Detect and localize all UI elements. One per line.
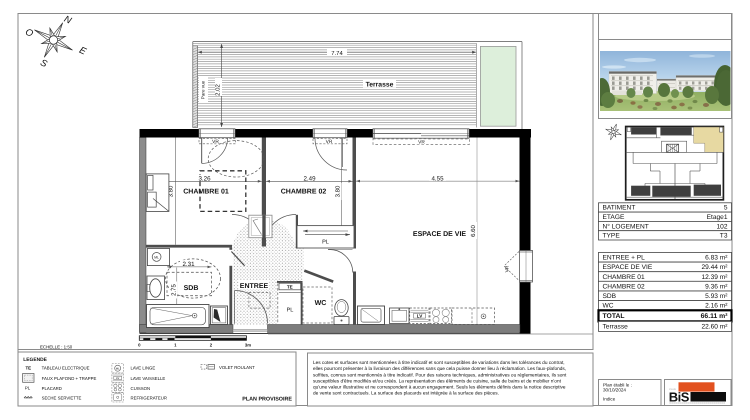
svg-text:3.26: 3.26: [198, 176, 211, 183]
svg-text:CHAMBRE 02: CHAMBRE 02: [281, 188, 327, 195]
svg-text:Les cotes et surfaces sont men: Les cotes et surfaces sont mentionnées à…: [313, 360, 565, 366]
svg-text:2.16 m²: 2.16 m²: [705, 303, 728, 310]
svg-text:ENTREE: ENTREE: [240, 283, 269, 290]
svg-text:TYPE: TYPE: [603, 233, 621, 240]
svg-text:30/10/2024: 30/10/2024: [603, 388, 626, 393]
svg-text:6.60: 6.60: [470, 225, 477, 237]
svg-text:REFRIGERATEUR: REFRIGERATEUR: [131, 396, 167, 401]
svg-text:TE: TE: [25, 365, 31, 370]
svg-text:qu'une valeur illustrative et: qu'une valeur illustrative et ne corresp…: [313, 384, 566, 390]
svg-text:LV: LV: [417, 314, 423, 319]
svg-text:T3: T3: [720, 233, 728, 240]
svg-text:5: 5: [724, 205, 728, 212]
svg-text:soffites, connus sont mentionn: soffites, connus sont mentionnés à titre…: [313, 372, 567, 378]
svg-text:4.55: 4.55: [431, 175, 444, 182]
svg-text:ETAGE: ETAGE: [603, 214, 625, 221]
svg-text:66.11 m²: 66.11 m²: [701, 313, 729, 320]
svg-text:PL: PL: [322, 240, 329, 246]
svg-text:VOLET ROULANT: VOLET ROULANT: [219, 365, 255, 370]
svg-text:Pare vue: Pare vue: [201, 80, 206, 99]
svg-text:SDB: SDB: [184, 285, 199, 292]
svg-text:2.75: 2.75: [171, 284, 178, 296]
svg-text:Terrasse: Terrasse: [366, 82, 394, 89]
svg-text:de vente sont contractuels. La: de vente sont contractuels. La surface d…: [313, 391, 499, 397]
svg-text:Indice: Indice: [603, 397, 616, 402]
svg-text:6.83 m²: 6.83 m²: [705, 255, 728, 262]
svg-text:FAUX PLAFOND + TRAPPE: FAUX PLAFOND + TRAPPE: [42, 376, 97, 381]
svg-text:3.80: 3.80: [334, 185, 341, 197]
svg-text:PL: PL: [25, 386, 31, 391]
svg-text:ENTREE + PL: ENTREE + PL: [603, 255, 646, 262]
svg-text:Etage1: Etage1: [707, 214, 728, 221]
svg-text:CHAMBRE 01: CHAMBRE 01: [603, 274, 645, 281]
svg-text:PLACARD: PLACARD: [42, 386, 62, 391]
svg-text:VR: VR: [505, 265, 511, 272]
svg-text:TOTAL: TOTAL: [603, 313, 625, 320]
svg-text:TE: TE: [287, 285, 293, 290]
svg-text:7.74: 7.74: [331, 50, 343, 57]
svg-text:VR: VR: [418, 140, 425, 146]
svg-text:CHAMBRE 01: CHAMBRE 01: [183, 188, 229, 195]
svg-text:PL: PL: [287, 308, 294, 314]
svg-text:29.44 m²: 29.44 m²: [701, 264, 728, 271]
svg-text:ML: ML: [116, 367, 120, 371]
svg-text:ECHELLE : 1:50: ECHELLE : 1:50: [40, 344, 73, 349]
svg-text:elles pourront présenter à la: elles pourront présenter à la livraison …: [313, 366, 566, 372]
svg-text:5.93 m²: 5.93 m²: [705, 293, 728, 300]
svg-text:2.02: 2.02: [215, 84, 222, 96]
svg-text:TABLEAU ELECTRIQUE: TABLEAU ELECTRIQUE: [42, 365, 90, 370]
svg-text:102: 102: [716, 223, 727, 230]
svg-text:N° LOGEMENT: N° LOGEMENT: [603, 223, 649, 230]
svg-text:ESPACE DE VIE: ESPACE DE VIE: [603, 264, 653, 271]
svg-text:LAVE LINGE: LAVE LINGE: [131, 365, 156, 370]
svg-text:LV: LV: [116, 376, 119, 380]
svg-text:3m: 3m: [245, 343, 251, 348]
svg-text:VR: VR: [326, 139, 333, 145]
svg-text:susceptibles d'être modifiés e: susceptibles d'être modifiés et/ou créés…: [313, 378, 562, 384]
svg-text:9.36 m²: 9.36 m²: [705, 283, 728, 290]
svg-text:2.31: 2.31: [182, 261, 195, 268]
svg-text:BiS: BiS: [669, 389, 690, 404]
svg-text:VR: VR: [212, 139, 219, 145]
svg-text:BATIMENT: BATIMENT: [603, 205, 636, 212]
svg-text:CHAMBRE 02: CHAMBRE 02: [603, 283, 645, 290]
svg-text:12.39 m²: 12.39 m²: [701, 274, 728, 281]
svg-text:ML: ML: [154, 256, 159, 260]
svg-text:ESPACE DE VIE: ESPACE DE VIE: [413, 231, 466, 238]
svg-text:SECHE SERVIETTE: SECHE SERVIETTE: [42, 396, 82, 401]
svg-text:2.49: 2.49: [303, 176, 316, 183]
svg-text:LEGENDE: LEGENDE: [23, 357, 47, 363]
svg-text:WC: WC: [603, 303, 614, 310]
svg-text:WC: WC: [315, 299, 327, 307]
svg-text:CUISSON: CUISSON: [131, 386, 151, 391]
svg-text:LAVE VAISSELLE: LAVE VAISSELLE: [131, 376, 166, 381]
svg-text:PLAN PROVISOIRE: PLAN PROVISOIRE: [242, 397, 292, 403]
svg-text:SDB: SDB: [603, 293, 617, 300]
svg-text:22.60 m²: 22.60 m²: [701, 324, 728, 331]
svg-text:Terrasse: Terrasse: [603, 324, 629, 331]
